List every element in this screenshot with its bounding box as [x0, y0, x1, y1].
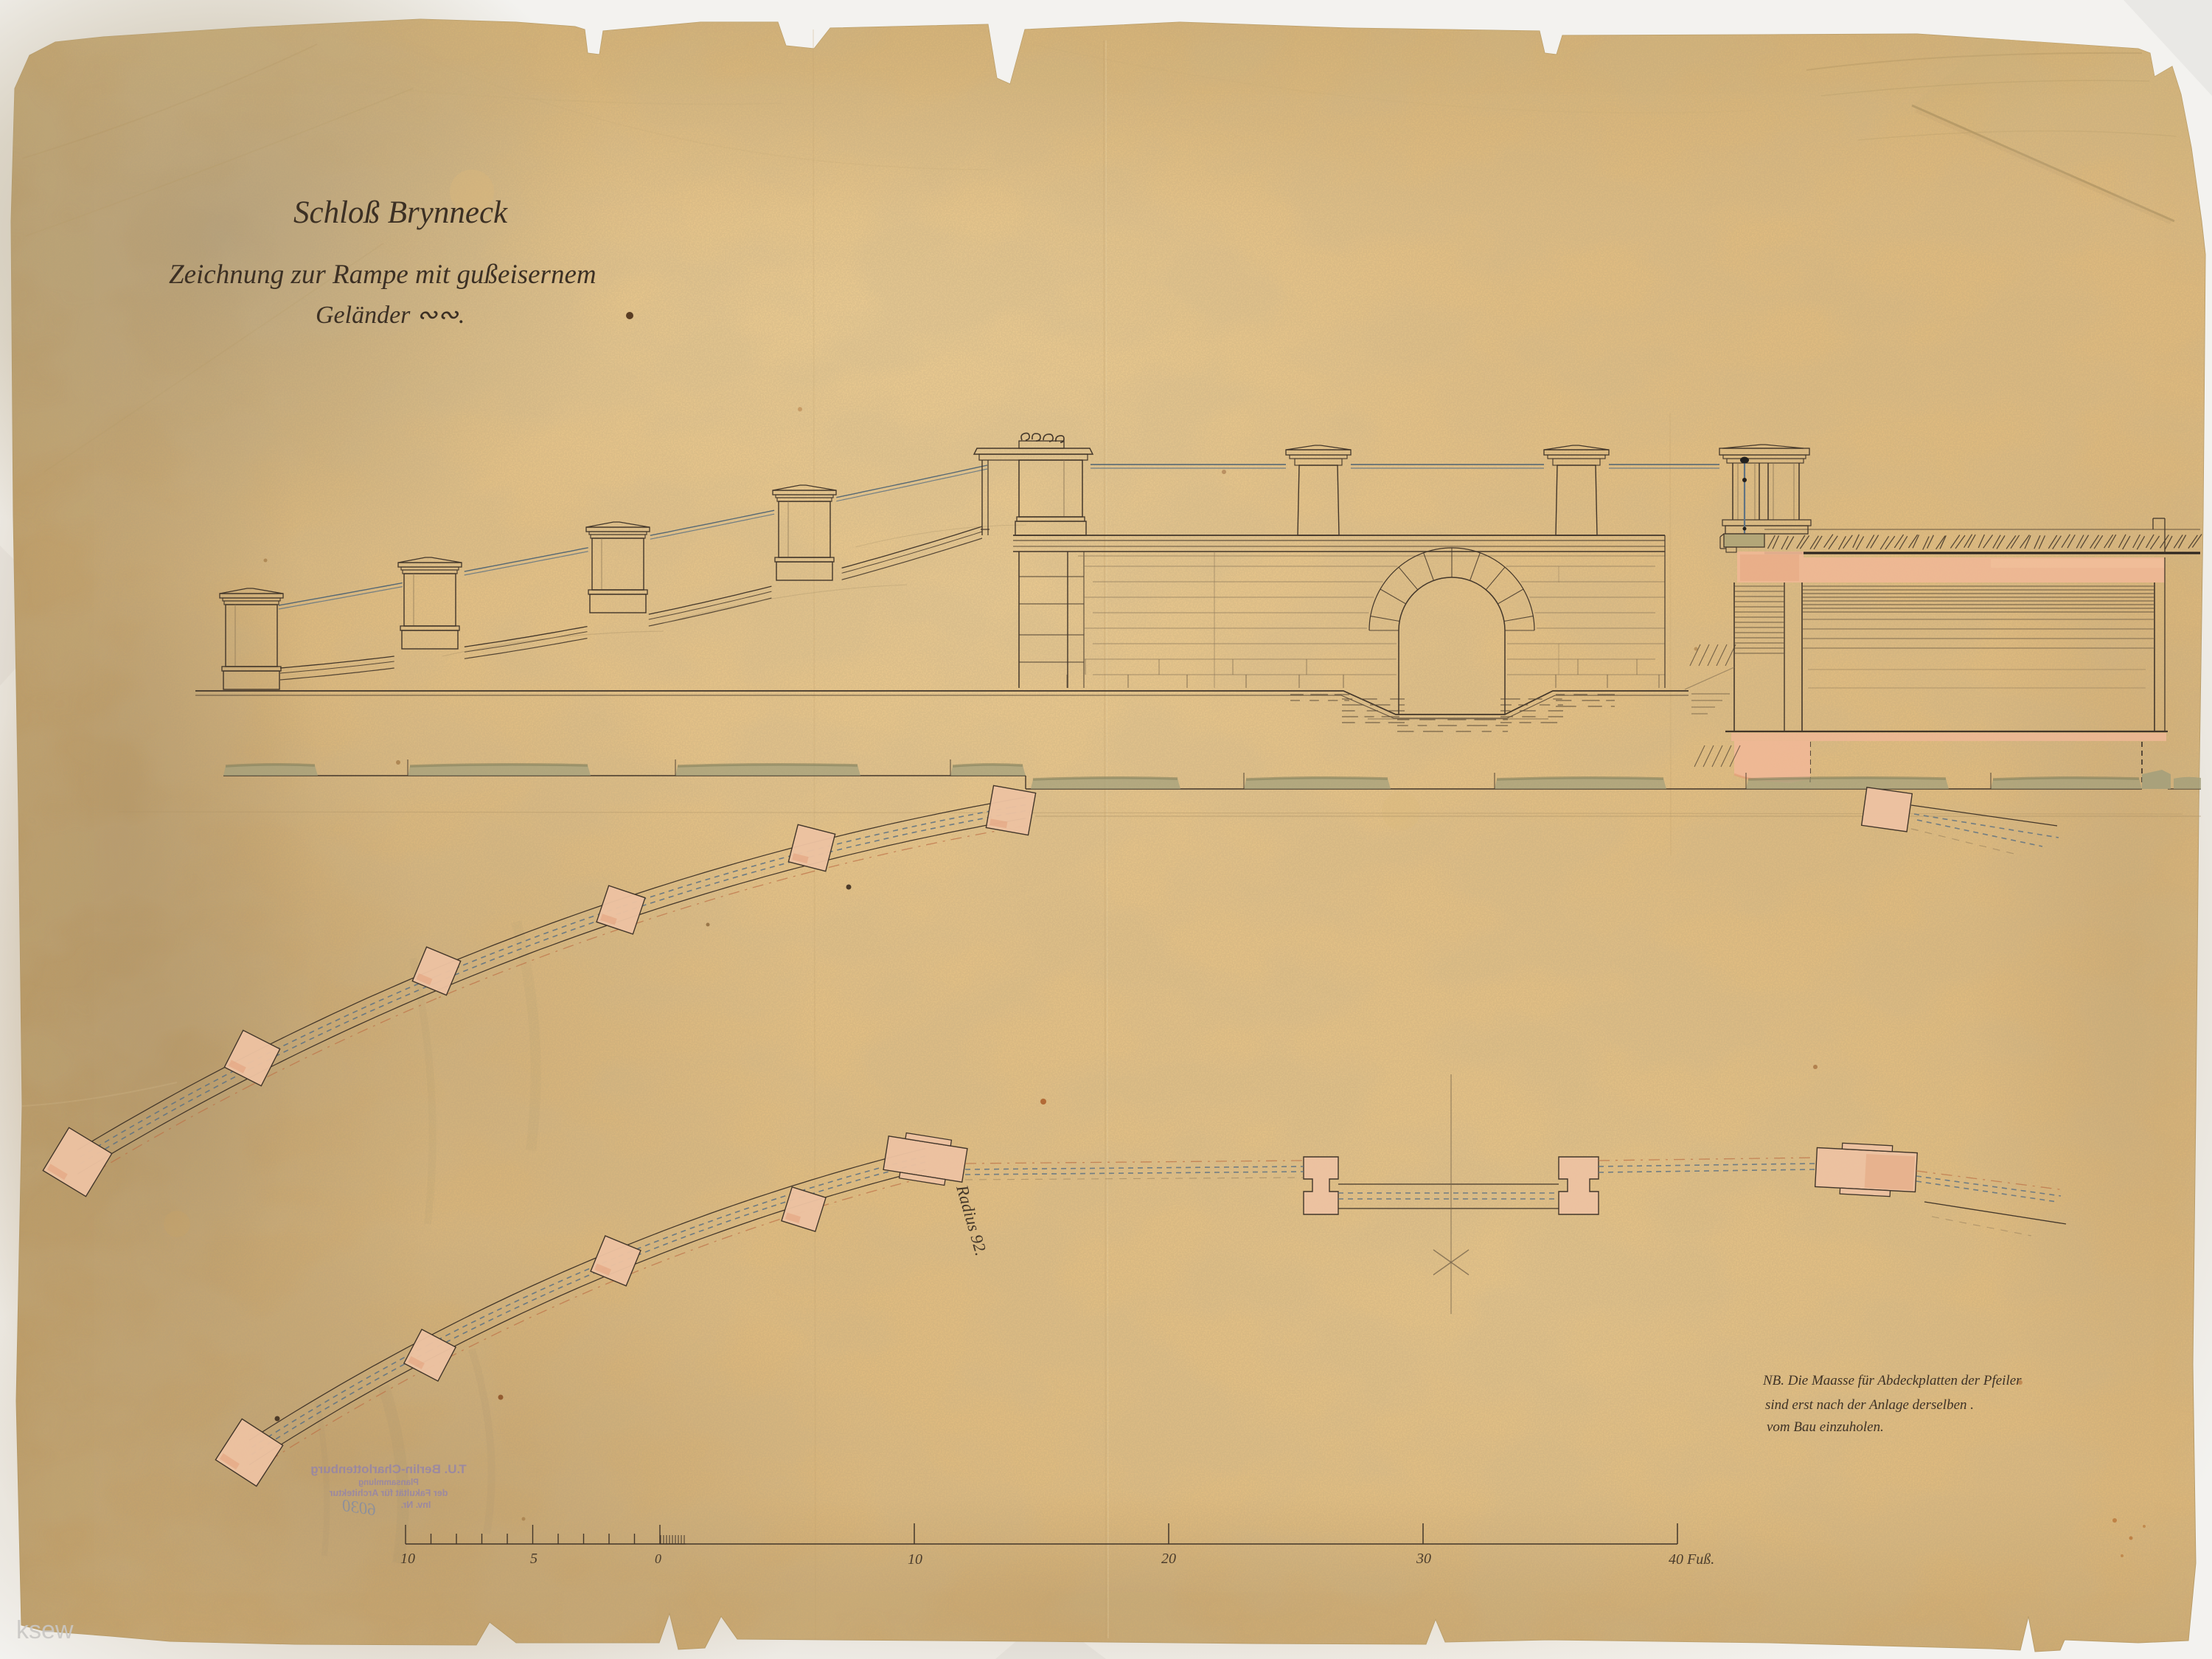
svg-text:30: 30	[1416, 1551, 1431, 1567]
svg-text:vom Bau einzuholen.: vom Bau einzuholen.	[1767, 1419, 1884, 1435]
svg-text:Inv. Nr.: Inv. Nr.	[401, 1500, 431, 1510]
svg-text:10: 10	[908, 1551, 922, 1568]
svg-text:ksew: ksew	[16, 1616, 74, 1644]
svg-text:Plansammlung: Plansammlung	[358, 1478, 419, 1487]
svg-text:NB. Die Maasse für Abdeckplatt: NB. Die Maasse für Abdeckplatten der Pfe…	[1762, 1373, 2022, 1388]
svg-text:Geländer ∾∾.: Geländer ∾∾.	[316, 302, 465, 329]
svg-text:Zeichnung zur Rampe mit gußeis: Zeichnung zur Rampe mit gußeisernem	[169, 260, 597, 290]
svg-text:20: 20	[1161, 1551, 1176, 1567]
svg-text:10: 10	[400, 1551, 415, 1567]
svg-text:T.U. Berlin-Charlottenburg: T.U. Berlin-Charlottenburg	[310, 1462, 467, 1476]
svg-text:0: 0	[655, 1551, 661, 1566]
svg-text:5: 5	[530, 1551, 538, 1567]
svg-text:sind erst nach der Anlage ders: sind erst nach der Anlage derselben .	[1765, 1397, 1974, 1413]
svg-text:40 Fuß.: 40 Fuß.	[1669, 1551, 1714, 1568]
svg-text:Schloß Brynneck: Schloß Brynneck	[293, 195, 508, 230]
